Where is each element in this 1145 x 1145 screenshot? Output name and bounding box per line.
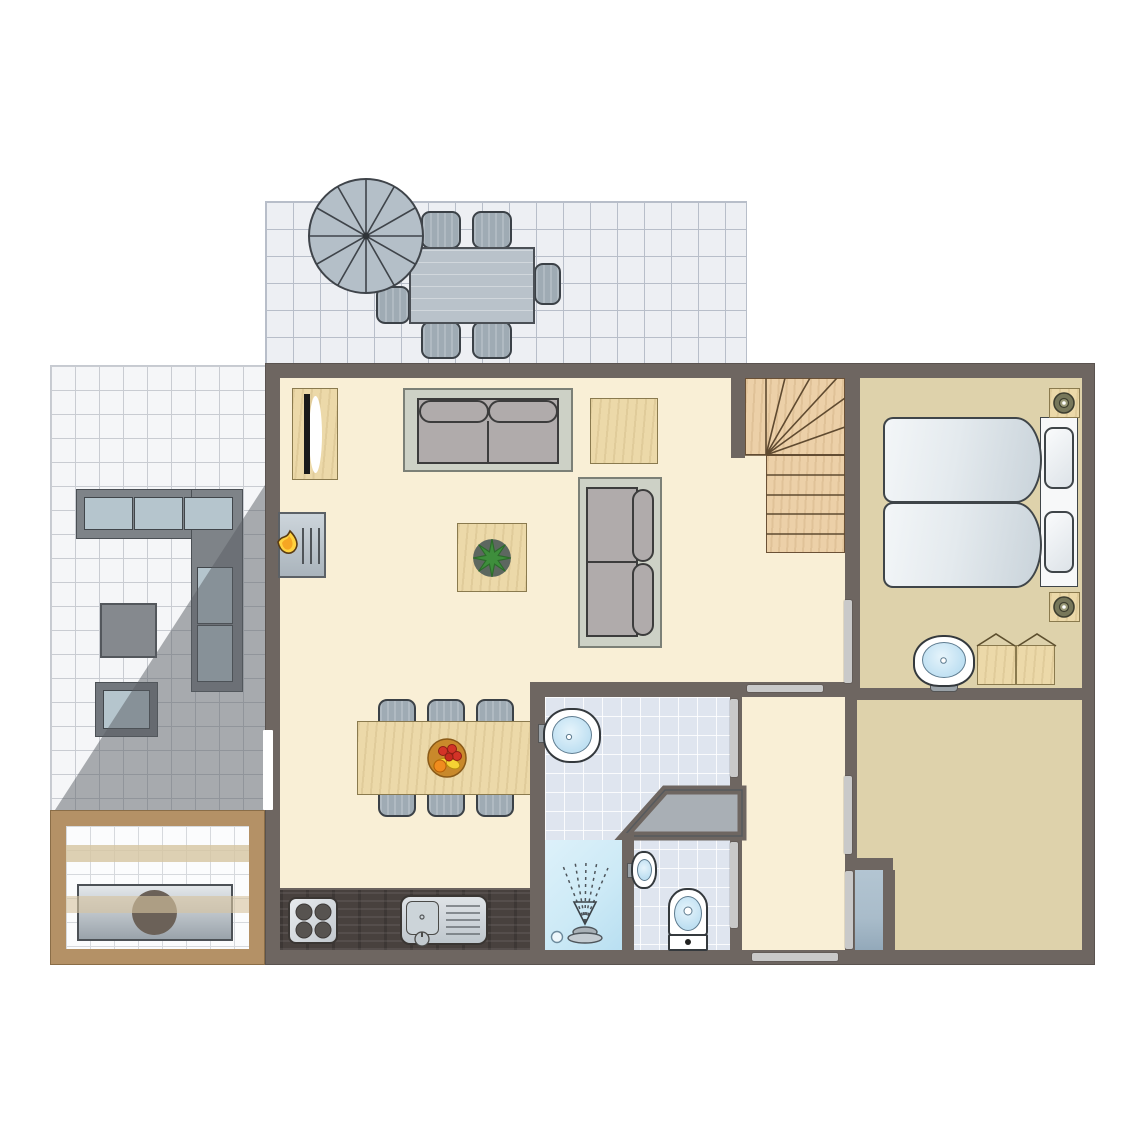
ottoman-cushion: [103, 690, 150, 729]
door-opening-hallway-toilet: [730, 842, 738, 928]
basin-bowl: [637, 859, 652, 881]
basin-drain: [565, 733, 573, 741]
toilet-details: [668, 888, 708, 952]
outdoor-chair: [472, 211, 512, 249]
stove-burners: [288, 897, 338, 944]
shower-spray-icon: [545, 840, 622, 950]
bed: [883, 502, 1042, 588]
toilet-wall: [622, 833, 634, 950]
outdoor-chair: [421, 211, 461, 249]
wardrobe-door-swing: [975, 630, 1059, 648]
lamp-icon: [1053, 392, 1075, 414]
bathroom-wall: [530, 682, 545, 950]
door-opening-living-bedroom-1: [844, 600, 852, 683]
door-opening-exterior: [752, 953, 838, 961]
veranda-beam: [66, 845, 249, 862]
sofa-back-cushion: [488, 400, 558, 423]
outdoor-chair: [534, 263, 561, 305]
parasol-icon: [306, 176, 427, 297]
wardrobe: [977, 645, 1016, 685]
tv: [304, 394, 310, 474]
pillow: [1044, 427, 1074, 489]
door-opening-closet: [845, 871, 853, 949]
sofa-cushion: [184, 497, 233, 530]
sofa-back-cushion: [632, 489, 654, 562]
outdoor-chair: [421, 321, 461, 359]
veranda-beam: [66, 896, 249, 913]
bed: [883, 417, 1042, 503]
sofa-cushion: [84, 497, 133, 530]
storage-closet: [855, 870, 883, 950]
stair-wall: [731, 378, 745, 458]
pillow: [1044, 511, 1074, 573]
lamp-icon: [1053, 596, 1075, 618]
patio-sliding-door: [263, 730, 273, 810]
closet-wall: [883, 870, 895, 950]
fireplace-vent-lines: [298, 526, 324, 566]
door-opening-hallway-bathroom: [730, 699, 738, 777]
sofa-seat-divider: [487, 421, 489, 463]
wardrobe: [1016, 645, 1055, 685]
outdoor-side-table: [100, 603, 157, 658]
sofa-back-cushion: [419, 400, 489, 423]
floor-plan: [0, 0, 1145, 1145]
sofa-seat-divider: [587, 561, 637, 563]
outdoor-dining-table: [409, 247, 535, 324]
side-table: [590, 398, 658, 464]
tv-screen: [309, 396, 322, 473]
sofa-cushion: [134, 497, 183, 530]
plant-icon: [472, 538, 512, 578]
closet-wall: [845, 858, 893, 870]
door-opening-hallway-bedroom-2: [844, 776, 852, 854]
sofa-cushion: [197, 625, 233, 682]
sofa-back-cushion: [632, 563, 654, 636]
fruit-bowl-icon: [426, 737, 468, 779]
basin-drain: [939, 656, 948, 665]
hallway-floor: [742, 697, 845, 950]
door-opening-living-hallway: [747, 685, 823, 692]
sink-details: [400, 895, 488, 947]
outdoor-chair: [472, 321, 512, 359]
stair-treads: [745, 378, 845, 553]
sofa-cushion: [197, 567, 233, 624]
